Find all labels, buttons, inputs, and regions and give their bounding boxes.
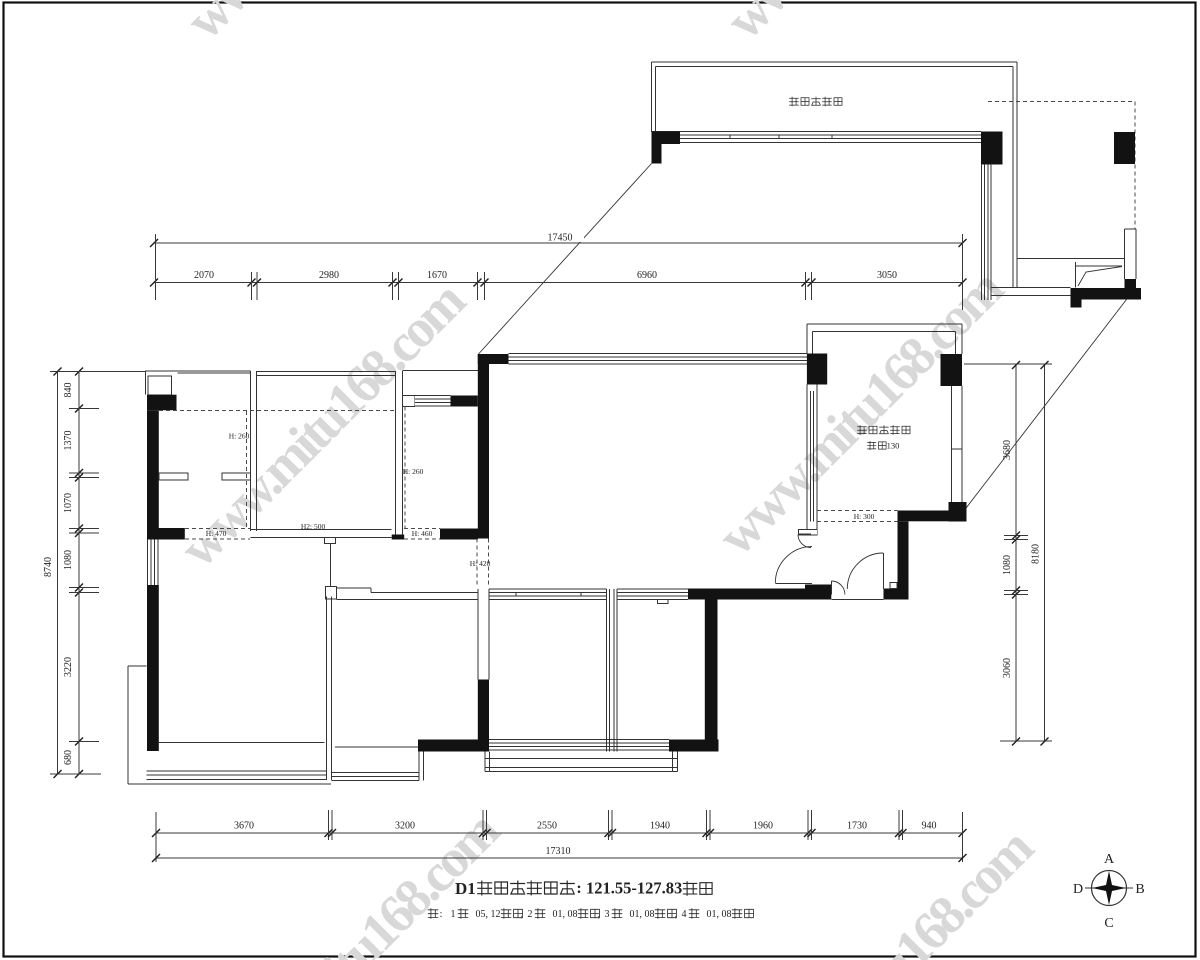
- svg-text:1960: 1960: [753, 821, 773, 832]
- svg-text:C: C: [1104, 916, 1113, 931]
- svg-text:1940: 1940: [650, 821, 670, 832]
- svg-text:1080: 1080: [63, 550, 74, 570]
- svg-text:3680: 3680: [1002, 440, 1013, 460]
- svg-text:1370: 1370: [63, 431, 74, 451]
- svg-text:3220: 3220: [63, 657, 74, 677]
- svg-text:,: ,: [598, 909, 601, 920]
- svg-text:D1: D1: [455, 879, 476, 898]
- svg-text:840: 840: [63, 383, 74, 398]
- svg-text:2: 2: [528, 909, 533, 920]
- svg-text:B: B: [1135, 882, 1144, 897]
- svg-text:2980: 2980: [319, 270, 339, 281]
- svg-text:A: A: [1104, 852, 1115, 867]
- svg-text:H: 300: H: 300: [854, 512, 875, 521]
- svg-text:1080: 1080: [1002, 555, 1013, 575]
- svg-text:4: 4: [682, 909, 687, 920]
- svg-text:H: 470: H: 470: [206, 529, 227, 538]
- svg-text:17450: 17450: [548, 233, 573, 244]
- svg-text:1670: 1670: [427, 270, 447, 281]
- svg-text:,: ,: [521, 909, 524, 920]
- svg-text:17310: 17310: [546, 846, 571, 857]
- svg-text:D: D: [1073, 882, 1083, 897]
- svg-text:05, 12: 05, 12: [476, 909, 501, 920]
- svg-text:H: 260: H: 260: [403, 467, 424, 476]
- svg-text:H: 260: H: 260: [229, 432, 250, 441]
- svg-text:01, 08: 01, 08: [553, 909, 578, 920]
- svg-text::: :: [576, 880, 581, 897]
- svg-text:8740: 8740: [43, 557, 54, 577]
- svg-text:3: 3: [605, 909, 610, 920]
- svg-text:3060: 3060: [1002, 658, 1013, 678]
- svg-text:680: 680: [63, 750, 74, 765]
- svg-text:3670: 3670: [234, 821, 254, 832]
- svg-text:2550: 2550: [537, 821, 557, 832]
- svg-text:H2: 500: H2: 500: [301, 522, 326, 531]
- svg-text:130: 130: [887, 441, 900, 451]
- svg-text:H: 420: H: 420: [470, 559, 491, 568]
- svg-text:940: 940: [922, 821, 937, 832]
- svg-text:1: 1: [451, 909, 456, 920]
- svg-text:,: ,: [675, 909, 678, 920]
- svg-text:3200: 3200: [395, 821, 415, 832]
- svg-text:H: 460: H: 460: [412, 529, 433, 538]
- svg-text:121.55-127.83: 121.55-127.83: [586, 879, 682, 898]
- svg-text:6960: 6960: [637, 270, 657, 281]
- svg-text:2070: 2070: [194, 270, 214, 281]
- svg-text::: :: [440, 909, 443, 920]
- svg-text:1070: 1070: [63, 493, 74, 513]
- svg-text:1730: 1730: [847, 821, 867, 832]
- svg-text:01, 08: 01, 08: [707, 909, 732, 920]
- svg-text:8180: 8180: [1031, 544, 1042, 564]
- svg-text:3050: 3050: [877, 270, 897, 281]
- svg-text:01, 08: 01, 08: [630, 909, 655, 920]
